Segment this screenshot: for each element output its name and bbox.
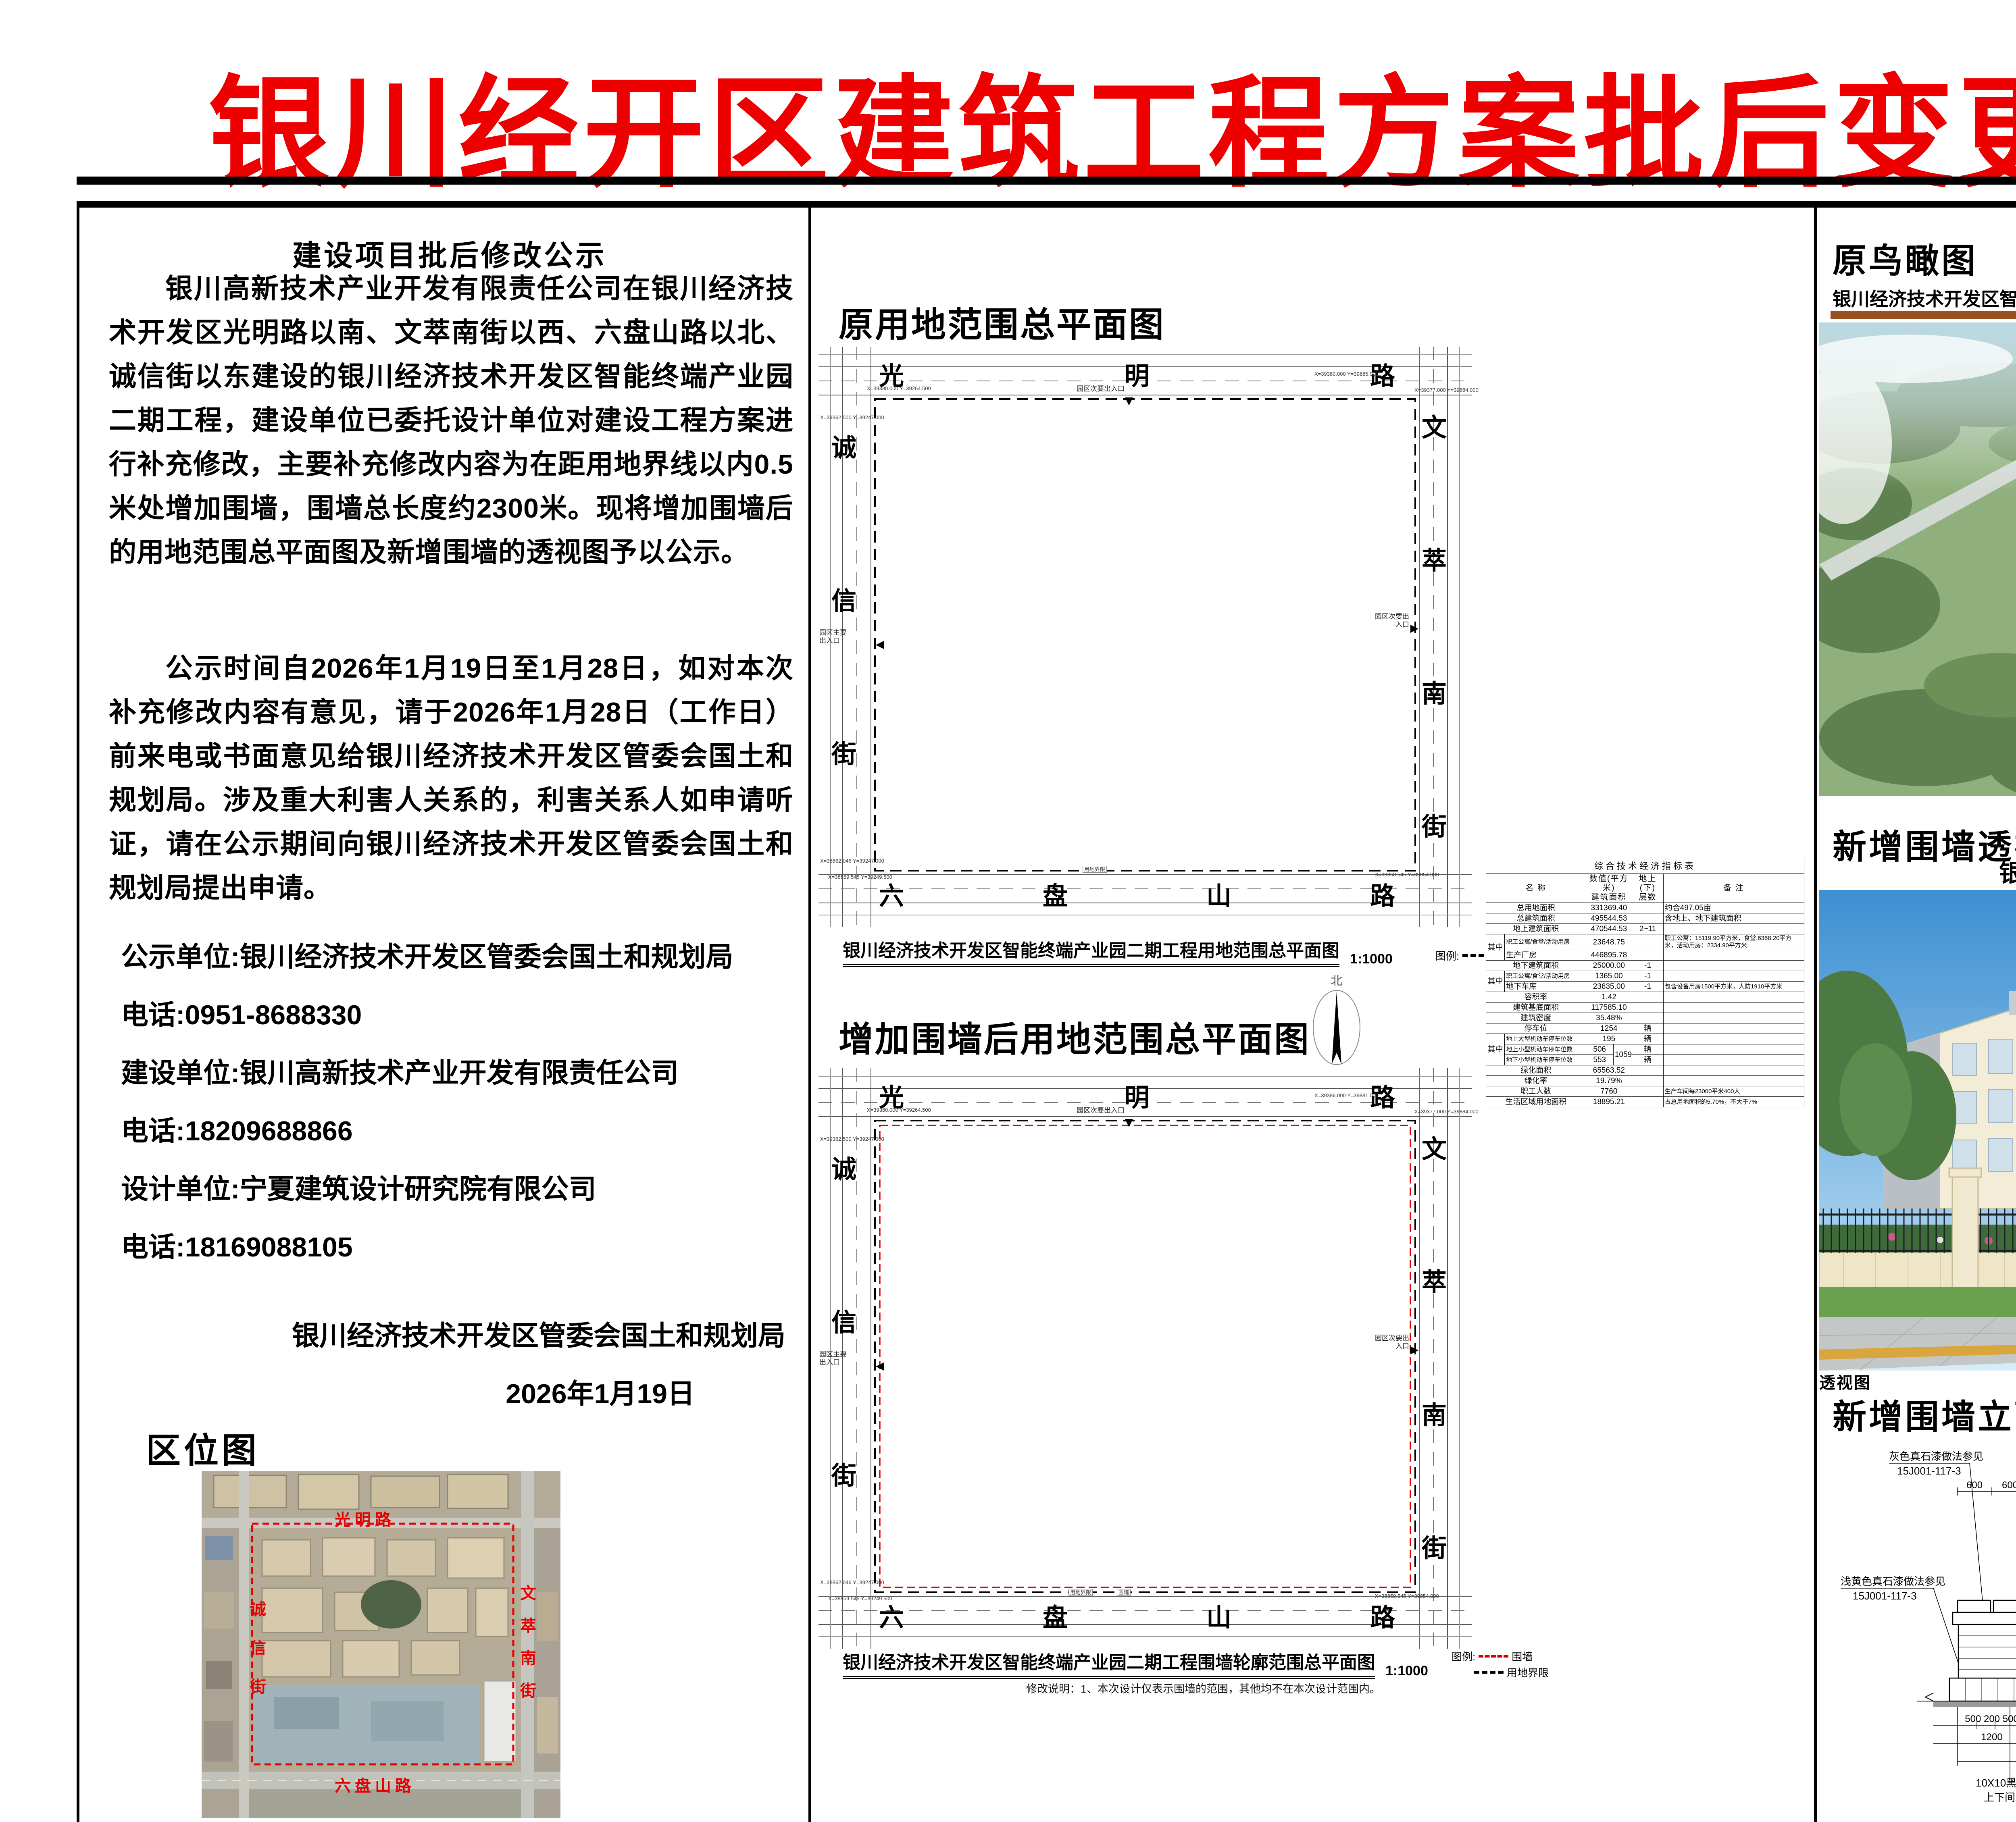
column-divider-2 [1814,208,1817,1822]
road-label-char: 南 [1421,673,1447,709]
table-cell: 553 [1586,1055,1613,1065]
table-cell: 65563.52 [1586,1065,1632,1076]
aerial-caption-bar [1831,311,2016,319]
svg-text:500 200 500: 500 200 500 [1965,1714,2016,1724]
plan1-caption-row: 银川经济技术开发区智能终端产业园二期工程用地范围总平面图 1:1000 [843,936,1393,967]
plan1-boundary-label: 用地界限 [1083,866,1107,873]
perspective-title: 银川经济技术开发区智能终端产业园二期围墙设计方案 [1976,854,2016,889]
table-cell: 25000.00 [1586,961,1632,971]
table-cell: 地上小型机动车停车位数 [1505,1044,1586,1055]
table-cell [1663,1003,1804,1013]
plan2-coord-tl: X=39380.000 Y=39264.500 [867,1107,931,1113]
table-cell: 195 [1586,1034,1632,1044]
locmap-road-chengxin: 诚信街 [250,1596,266,1697]
svg-text:600: 600 [2002,1480,2016,1491]
svg-text:1200: 1200 [1981,1732,2002,1743]
plan2-wall-label: 围墙 [1117,1589,1131,1596]
plan2-caption: 银川经济技术开发区智能终端产业园二期工程围墙轮廓范围总平面图 [843,1648,1375,1679]
road-label-char: 街 [250,1674,266,1697]
table-row: 绿化面积65563.52 [1486,1065,1804,1076]
table-cell [1632,992,1663,1003]
table-row: 建筑基底面积117585.10 [1486,1003,1804,1013]
table-cell: -1 [1632,982,1663,992]
road-label-char: 信 [831,1302,857,1338]
table-cell: 停车位 [1486,1023,1586,1034]
plan2-legend-boundary-swatch [1474,1671,1504,1674]
road-label-char: 街 [831,734,857,770]
table-row: 其中职工公寓/食堂/活动用房23648.75职工公寓：15119.90平方米，食… [1486,934,1804,950]
north-arrow-label: 北 [1308,971,1365,988]
plan1-road-chengxin: 诚信街 [831,427,857,770]
road-label-char: 信 [831,580,857,617]
plan1-heading: 原用地范围总平面图 [839,296,1165,347]
plan2-entrance-right: 园区次要出入口 [1373,1334,1409,1350]
table-cell: 地下建筑面积 [1486,961,1586,971]
elevation-drawing: 灰色真石漆做法参见 15J001-117-3 立柱采用60X60方钢管黑油漆 厚… [1837,1443,2016,1820]
table-cell: 23648.75 [1586,934,1632,950]
table-cell: -1 [1632,961,1663,971]
plan2-road-wencui: 文萃南街 [1421,1129,1447,1564]
aerial-render-image [1819,322,2016,796]
table-cell: 331369.40 [1586,903,1632,913]
column-divider-1 [808,208,811,1822]
plan2-coord-br: X=38859.545 Y=39854.000 [1375,1593,1439,1599]
table-row: 绿化率19.79% [1486,1076,1804,1086]
table-cell [1632,934,1663,950]
publisher-tel-line: 电话:0951-8688330 [121,992,362,1032]
table-cell: 约合497.05亩 [1663,903,1804,913]
table-cell [1663,950,1804,961]
road-label-char: 诚 [831,1149,857,1185]
table-cell [1632,1086,1663,1097]
table-row: 生产厂房446895.78 [1486,950,1804,961]
table-cell: 包含设备用房1500平方米，人防1910平方米 [1663,982,1804,992]
table-cell: 495544.53 [1586,913,1632,924]
table-row: 其中地上大型机动车停车位数195辆 [1486,1034,1804,1044]
table-cell [1632,1065,1663,1076]
plan2-legend-wall-text: 围墙 [1512,1649,1533,1664]
road-label-char: 六 [879,1597,904,1633]
location-map: 光明路 诚信街 文萃南街 六盘山路 [202,1471,560,1818]
table-cell: -1 [1632,971,1663,982]
plan1-entrance-right: 园区次要出入口 [1373,613,1409,629]
road-label-char: 山 [1206,1597,1231,1633]
plan2-legend-wall: 图例: 围墙 [1452,1649,1533,1664]
table-row: 地上小型机动车停车位数5061059辆 [1486,1044,1804,1055]
svg-text:15J001-117-3: 15J001-117-3 [1897,1465,1961,1477]
table-cell [1632,1003,1663,1013]
locmap-road-guangming: 光明路 [335,1507,395,1530]
table-cell: 地下车库 [1505,982,1586,992]
table-cell [1632,1097,1663,1107]
table-row: 地下车库23635.00-1包含设备用房1500平方米，人防1910平方米 [1486,982,1804,992]
table-row: 建筑密度35.48% [1486,1013,1804,1023]
locmap-road-wencui: 文萃南街 [520,1580,536,1701]
road-label-char: 盘 [1043,876,1068,912]
plan1-coord-tr2: X=39377.000 Y=39884.000 [1414,387,1479,393]
signoff-org: 银川经济技术开发区管委会国土和规划局 [292,1313,785,1353]
road-label-char: 明 [1125,1077,1150,1113]
perspective-render-image [1819,890,2016,1371]
svg-text:上下间距300: 上下间距300 [1984,1791,2016,1803]
table-cell [1663,1065,1804,1076]
table-row: 地上建筑面积470544.532~11 [1486,924,1804,934]
table-cell: 地上建筑面积 [1486,924,1586,934]
table-cell [1663,1044,1804,1055]
road-label-char: 文 [520,1580,536,1604]
plan2-coord-bl: X=38862.046 Y=39247.000 [820,1579,884,1585]
table-cell: 生产厂房 [1505,950,1586,961]
table-cell: 绿化面积 [1486,1065,1586,1076]
table-cell [1663,971,1804,982]
table-cell: 地下小型机动车停车位数 [1505,1055,1586,1065]
table-cell [1663,924,1804,934]
location-map-heading: 区位图 [146,1422,260,1473]
table-cell: 19.79% [1586,1076,1632,1086]
table-cell: 辆 [1632,1034,1663,1044]
designer-tel-line: 电话:18169088105 [121,1225,353,1265]
table-cell: 其中 [1486,971,1505,992]
table-cell [1632,950,1663,961]
indicator-table-title: 综合技术经济指标表 [1486,858,1804,874]
road-label-char: 诚 [250,1596,266,1620]
plan1-svg [818,347,1472,927]
road-label-char: 文 [1421,1129,1447,1165]
plan1-road-liupanshan: 六盘山路 [879,876,1395,912]
plan1-road-wencui: 文萃南街 [1421,407,1447,842]
table-cell: 1.42 [1586,992,1632,1003]
table-cell: 占总用地面积的5.70%，不大于7% [1663,1097,1804,1107]
table-row: 总建筑面积495544.53含地上、地下建筑面积 [1486,913,1804,924]
table-cell: 7760 [1586,1086,1632,1097]
road-label-char: 山 [1206,876,1231,912]
plan2-coord-bl2: X=38859.545 Y=39249.500 [828,1595,892,1602]
table-cell [1632,1076,1663,1086]
svg-text:15J001-117-3: 15J001-117-3 [1853,1590,1917,1602]
table-cell: 含地上、地下建筑面积 [1663,913,1804,924]
indicator-table: 综合技术经济指标表 名 称 数值(平方米) 建筑面积 地上(下) 层数 备 注 … [1486,858,1804,1107]
col-header-floors: 地上(下) 层数 [1632,874,1663,903]
plan2-coord-tr: X=39386.000 Y=39881.000 [1314,1092,1379,1098]
plan1-scale: 1:1000 [1350,951,1393,967]
table-cell [1632,903,1663,913]
table-cell: 辆 [1632,1044,1663,1055]
table-cell [1632,1013,1663,1023]
plan2-legend-label: 图例: [1452,1649,1475,1664]
frame-left-border [77,208,79,1822]
signoff-date: 2026年1月19日 [506,1371,695,1411]
road-label-char: 盘 [1043,1597,1068,1633]
table-row: 地下小型机动车停车位数553辆 [1486,1055,1804,1065]
col-header-remark: 备 注 [1663,874,1804,903]
road-label-char: 明 [1125,356,1150,392]
table-row: 容积率1.42 [1486,992,1804,1003]
elevation-heading: 新增围墙立面图 [1833,1390,2016,1439]
plan2-road-chengxin: 诚信街 [831,1149,857,1491]
table-cell [1663,1013,1804,1023]
plan1-coord-bl2: X=38859.545 Y=39249.500 [828,874,892,880]
table-cell: 职工公寓/食堂/活动用房 [1505,971,1586,982]
notice-paragraph-1: 银川高新技术产业开发有限责任公司在银川经济技术开发区光明路以南、文萃南街以西、六… [109,267,793,574]
table-cell [1663,961,1804,971]
table-cell: 117585.10 [1586,1003,1632,1013]
plan2-boundary-label: 用地界限 [1068,1589,1093,1596]
plan1-coord-tr: X=39380.000 Y=39885.000 [1314,371,1379,377]
plan2-legend-boundary-text: 用地界限 [1507,1665,1549,1680]
table-cell: 其中 [1486,1034,1505,1065]
col-header-name: 名 称 [1486,874,1586,903]
svg-text:600: 600 [1966,1480,1983,1491]
road-label-char: 南 [520,1645,536,1668]
table-row: 其中职工公寓/食堂/活动用房1365.00-1 [1486,971,1804,982]
plan1-coord-tl: X=39380.000 Y=39264.500 [867,385,931,391]
table-cell: 辆 [1632,1055,1663,1065]
road-label-char: 诚 [831,427,857,464]
road-label-char: 路 [1370,876,1395,912]
publisher-line: 公示单位:银川经济技术开发区管委会国土和规划局 [121,934,733,974]
road-label-char: 六 [879,876,904,912]
table-cell: 辆 [1632,1023,1663,1034]
table-row: 地下建筑面积25000.00-1 [1486,961,1804,971]
plan1-coord-tl2: X=39362.500 Y=39247.000 [820,414,884,420]
table-cell: 23635.00 [1586,982,1632,992]
table-cell: 绿化率 [1486,1076,1586,1086]
table-cell: 建筑基底面积 [1486,1003,1586,1013]
plan1-caption: 银川经济技术开发区智能终端产业园二期工程用地范围总平面图 [843,936,1339,967]
table-row: 职工人数7760生产车间每23000平米400人 [1486,1086,1804,1097]
road-label-char: 萃 [1421,1262,1447,1298]
north-arrow: 北 [1308,971,1365,1063]
builder-line: 建设单位:银川高新技术产业开发有限责任公司 [121,1050,679,1090]
road-label-char: 南 [1421,1395,1447,1431]
plan2-legend-wall-swatch [1479,1655,1508,1658]
table-cell: 生产车间每23000平米400人 [1663,1086,1804,1097]
plan2-drawing: 光明路 诚信街 文萃南街 六盘山路 园区次要出入口 园区次要出入口 园区主要出入… [818,1068,1472,1649]
road-label-char: 街 [520,1678,536,1701]
plan2-scale: 1:1000 [1385,1663,1428,1679]
table-row: 生活区域用地面积18895.21占总用地面积的5.70%，不大于7% [1486,1097,1804,1107]
aerial-render [1819,322,2016,796]
svg-text:浅黄色真石漆做法参见: 浅黄色真石漆做法参见 [1841,1575,1945,1587]
locmap-road-liupanshan: 六盘山路 [335,1773,415,1796]
road-label-char: 街 [831,1455,857,1491]
plan2-heading: 增加围墙后用地范围总平面图 [839,1011,1310,1061]
plan1-drawing: 光明路 诚信街 文萃南街 六盘山路 园区次要出入口 园区次要出入口 园区主要出入… [818,347,1472,927]
table-cell: 1059 [1613,1044,1632,1065]
col-header-value: 数值(平方米) 建筑面积 [1586,874,1632,903]
designer-line: 设计单位:宁夏建筑设计研究院有限公司 [121,1167,596,1206]
table-cell: 18895.21 [1586,1097,1632,1107]
plan2-road-liupanshan: 六盘山路 [879,1597,1395,1633]
table-cell: 建筑密度 [1486,1013,1586,1023]
plan2-entrance-left: 园区主要出入口 [819,1350,852,1366]
elevation-svg: 灰色真石漆做法参见 15J001-117-3 立柱采用60X60方钢管黑油漆 厚… [1837,1443,2016,1820]
table-cell [1663,992,1804,1003]
plan2-legend-boundary: 用地界限 [1474,1665,1549,1680]
plan1-entrance-top: 园区次要出入口 [1077,385,1125,393]
road-label-char: 信 [250,1635,266,1658]
table-cell: 其中 [1486,934,1505,961]
table-row: 停车位1254辆 [1486,1023,1804,1034]
north-arrow-icon [1308,988,1365,1067]
plan2-coord-tl2: X=39362.500 Y=39247.000 [820,1136,884,1142]
table-cell [1632,913,1663,924]
builder-tel-line: 电话:18209688866 [121,1109,353,1148]
table-cell: 1365.00 [1586,971,1632,982]
perspective-render [1819,890,2016,1371]
plan1-coord-br: X=38858.545 Y=39854.000 [1375,871,1439,878]
road-label-char: 街 [1421,806,1447,842]
table-cell: 446895.78 [1586,950,1632,961]
table-cell: 职工人数 [1486,1086,1586,1097]
table-cell [1663,1034,1804,1044]
plan2-svg [818,1068,1472,1649]
svg-text:灰色真石漆做法参见: 灰色真石漆做法参见 [1889,1450,1983,1462]
aerial-heading: 原鸟瞰图 [1833,234,1978,283]
road-label-char: 路 [1370,1597,1395,1633]
road-label-char: 文 [1421,407,1447,443]
table-cell: 容积率 [1486,992,1586,1003]
table-cell: 总用地面积 [1486,903,1586,913]
notice-paragraph-2: 公示时间自2026年1月19日至1月28日，如对本次补充修改内容有意见，请于20… [109,647,793,910]
table-cell: 506 [1586,1044,1613,1055]
table-cell: 生活区域用地面积 [1486,1097,1586,1107]
table-row: 总用地面积331369.40约合497.05亩 [1486,903,1804,913]
title-rule-top [77,177,2016,185]
table-cell: 1254 [1586,1023,1632,1034]
plan1-coord-bl: X=38862.046 Y=39247.000 [820,858,884,864]
table-cell: 地上大型机动车停车位数 [1505,1034,1586,1044]
notice-poster: { "title": "银川经开区建筑工程方案批后变更公示图", "roads"… [0,0,2016,1822]
title-rule-bottom [77,201,2016,208]
plan2-coord-tr2: X=39377.000 Y=39884.000 [1414,1109,1479,1115]
table-cell [1663,1055,1804,1065]
table-cell: 470544.53 [1586,924,1632,934]
plan1-legend-label: 图例: [1435,948,1459,963]
table-cell: 职工公寓/食堂/活动用房 [1505,934,1586,950]
table-cell: 职工公寓：15119.90平方米，食堂:6368.20平方米，活动用房：2334… [1663,934,1804,950]
plan2-entrance-top: 园区次要出入口 [1077,1107,1125,1115]
table-cell [1663,1023,1804,1034]
table-cell: 2~11 [1632,924,1663,934]
road-label-char: 街 [1421,1528,1447,1564]
table-cell: 总建筑面积 [1486,913,1586,924]
plan1-entrance-left: 园区主要出入口 [819,629,852,645]
table-cell: 35.48% [1586,1013,1632,1023]
plan2-caption-row: 银川经济技术开发区智能终端产业园二期工程围墙轮廓范围总平面图 1:1000 [843,1648,1428,1679]
table-cell [1663,1076,1804,1086]
road-label-char: 萃 [1421,540,1447,576]
road-label-char: 萃 [520,1613,536,1636]
indicator-table-body: 总用地面积331369.40约合497.05亩总建筑面积495544.53含地上… [1486,903,1804,1107]
plan2-note: 修改说明：1、本次设计仅表示围墙的范围，其他均不在本次设计范围内。 [1026,1680,1381,1696]
